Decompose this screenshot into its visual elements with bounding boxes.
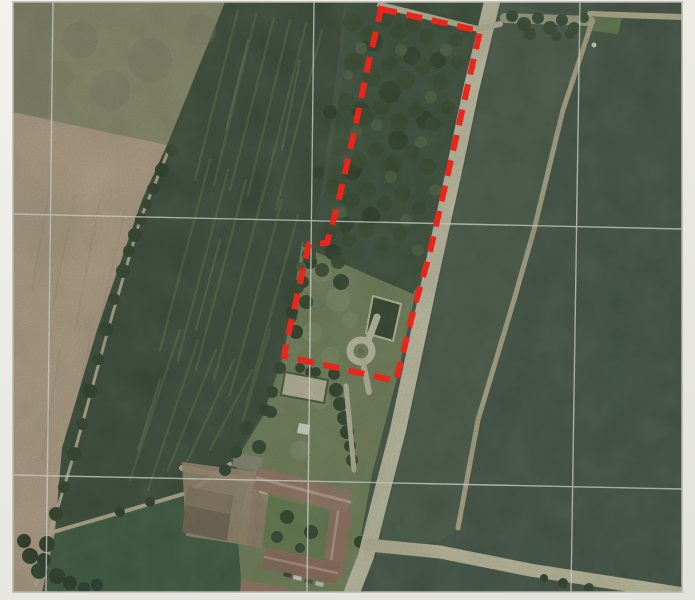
aerial-photo <box>0 0 695 600</box>
scanned-page <box>0 0 695 600</box>
photo-grain <box>13 2 682 592</box>
photo-content <box>13 2 684 594</box>
